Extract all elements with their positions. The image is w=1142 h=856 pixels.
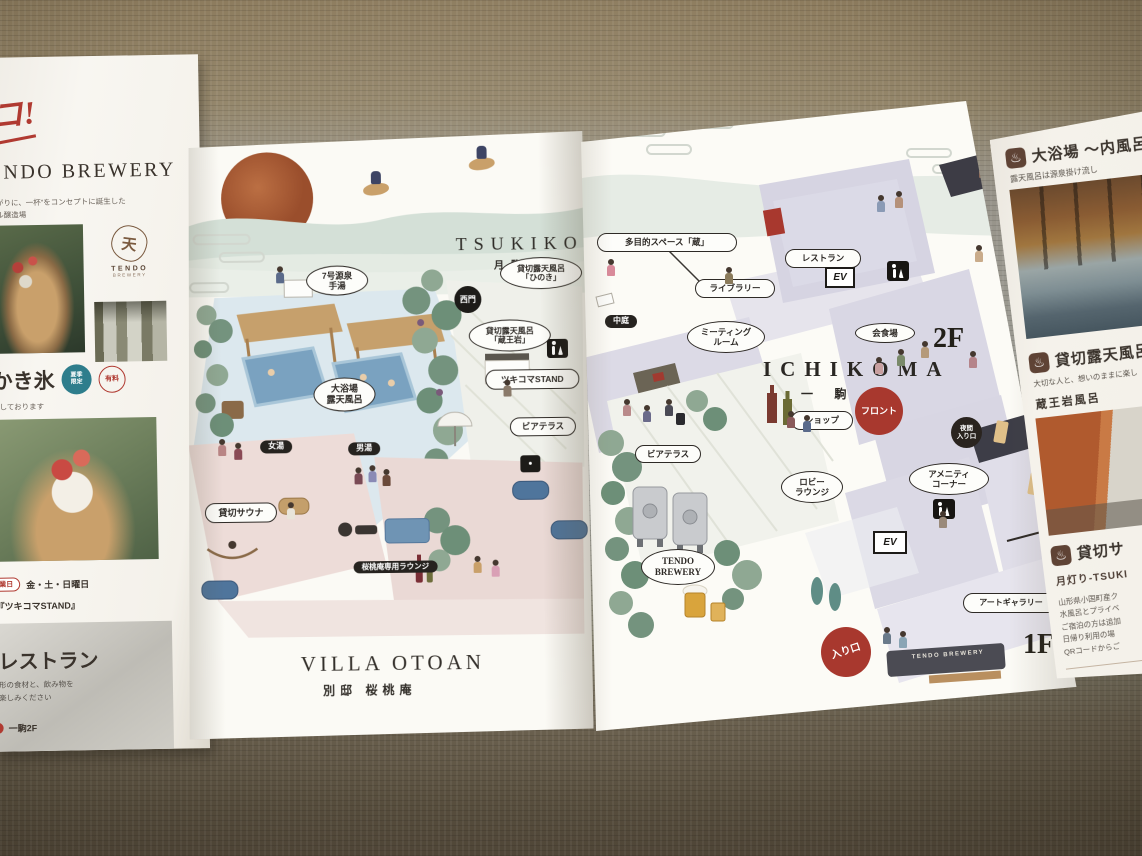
kakigori-section-header: かき氷 夏季 限定 有料 — [0, 364, 126, 396]
person-illustration — [643, 405, 651, 422]
map-label-banquet: 会食場 — [855, 323, 915, 343]
map-label-restaurant: レストラン — [785, 249, 861, 268]
person-illustration — [276, 266, 284, 283]
tendo-brewery-logo: 天 TENDO BREWERY — [93, 225, 166, 296]
person-illustration — [969, 351, 977, 368]
person-illustration — [287, 502, 295, 519]
restaurant-location: 一駒2F — [0, 721, 37, 735]
onsen-icon: ♨ — [1028, 351, 1050, 373]
sauna-description: 山形県小国町産ク 水風呂とプライベ ご宿泊の方は追加 日帰り利用の場 QRコード… — [1058, 590, 1125, 658]
restroom-icon — [547, 339, 568, 358]
map-label-tsukikoma-stand: ツキコマSTAND — [485, 369, 579, 390]
person-illustration — [473, 556, 481, 573]
elevator-label-1f: EV — [873, 531, 907, 554]
tsukikoma-map-page: TSUKIKOMA 月駒 7号源泉手湯 西門 貸切露天風呂「ひのき」 貸切露天風… — [182, 129, 593, 740]
person-illustration — [607, 259, 615, 276]
floor-1f-label: 1F — [1023, 629, 1054, 661]
sauna-name: 月灯り-TSUKI — [1055, 565, 1129, 588]
person-illustration — [354, 467, 362, 484]
brewery-section-description: あがりに、一杯”をコンセプトに誕生した ール醸造場 — [0, 195, 126, 221]
kakigori-photo — [0, 417, 159, 562]
map-label-beer-terrace: ビアテラス — [635, 445, 701, 463]
person-illustration — [787, 411, 795, 428]
person-illustration — [503, 379, 511, 396]
person-illustration — [725, 267, 733, 284]
person-illustration — [623, 399, 631, 416]
kakigori-title: かき氷 — [0, 365, 55, 396]
paid-badge: 有料 — [98, 365, 125, 392]
person-illustration — [218, 439, 226, 456]
rider-illustration — [468, 146, 496, 170]
person-illustration — [368, 465, 376, 482]
person-illustration — [899, 631, 907, 648]
person-illustration — [875, 357, 883, 374]
zao-rock-bath-label: 蔵王岩風呂 — [1035, 389, 1101, 412]
map-label-men-bath: 男湯 — [348, 442, 380, 455]
brochure-photo-scene: コ! TENDO BREWERY あがりに、一杯”をコンセプトに誕生した ール醸… — [0, 0, 1142, 856]
person-illustration — [883, 627, 891, 644]
person-illustration — [939, 511, 947, 528]
seasonal-badge: 夏季 限定 — [61, 364, 92, 395]
map-label-beer-terrace: ビアテラス — [510, 417, 576, 437]
cloud-doodles — [607, 119, 967, 173]
map-label-courtyard: 中庭 — [605, 315, 637, 328]
map-label-night-entrance: 夜間入り口 — [951, 417, 982, 448]
person-illustration — [382, 469, 390, 486]
person-illustration — [234, 443, 242, 460]
brewery-section-title: TENDO BREWERY — [0, 159, 176, 186]
schedule-row: 営業日 金・土・日曜日 — [0, 576, 89, 592]
rider-illustration — [363, 171, 391, 195]
elevator-label-2f: EV — [825, 267, 855, 288]
map-label-art-gallery: アートギャラリー — [963, 593, 1059, 613]
kakigori-note: 売しております — [0, 401, 44, 413]
schedule-badge: 営業日 — [0, 577, 20, 592]
ichikoma-title: ICHIKOMA — [763, 357, 951, 382]
restaurant-title: レストラン — [0, 644, 99, 675]
person-illustration — [877, 195, 885, 212]
restaurant-description: 形の食材と、飲み物を 楽しみください — [0, 678, 74, 705]
person-illustration — [492, 560, 500, 577]
plum-blossom-logo-icon: 天 — [109, 223, 149, 263]
map-label-amenity-corner: アメニティコーナー — [909, 463, 989, 495]
person-illustration — [665, 399, 673, 416]
person-illustration — [975, 245, 983, 262]
villa-otoan-title: VILLA OTOAN — [301, 650, 485, 677]
map-label-front-desk: フロント — [855, 387, 903, 435]
private-sauna-title: 貸切サ — [1076, 537, 1126, 563]
person-illustration — [803, 415, 811, 432]
onsen-icon: ♨ — [1050, 544, 1072, 566]
tsukikoma-title: TSUKIKOMA — [456, 232, 594, 255]
map-label-multi-space: 多目的スペース「蔵」 — [597, 233, 737, 252]
private-sauna-section-header: ♨ 貸切サ — [1050, 537, 1126, 566]
handwritten-accent-text: コ! — [0, 87, 38, 138]
restaurant-section: レストラン 形の食材と、飲み物を 楽しみください 一駒2F — [0, 621, 174, 752]
brochure-left-panel: コ! TENDO BREWERY あがりに、一杯”をコンセプトに誕生した ール醸… — [0, 54, 210, 752]
map-label-shop: ショップ — [791, 411, 853, 430]
private-bath-title: 貸切露天風呂 — [1054, 339, 1142, 371]
rock-bath-photo — [1035, 399, 1142, 536]
stand-name-line: 『ツキコマSTAND』 — [0, 598, 80, 612]
bath-section-header: ♨ 大浴場 〜内風呂・露 — [1005, 128, 1142, 169]
person-illustration — [921, 341, 929, 358]
open-air-bath-photo — [1009, 170, 1142, 339]
map-label-tendo-brewery: TENDOBREWERY — [641, 549, 715, 585]
ichikoma-title-ja: 一 駒 — [801, 385, 855, 402]
beer-barrel-photo — [0, 224, 85, 354]
floor-2f-label: 2F — [933, 323, 964, 355]
villa-otoan-title-ja: 別邸 桜桃庵 — [323, 681, 417, 699]
map-label-entrance: 入り口 — [821, 627, 871, 677]
location-marker-icon — [0, 723, 4, 734]
map-label-villa-lounge: 桜桃庵専用ラウンジ — [354, 560, 438, 573]
schedule-days: 金・土・日曜日 — [26, 577, 89, 591]
person-illustration — [895, 191, 903, 208]
restroom-icon — [887, 261, 909, 281]
person-illustration — [897, 349, 905, 366]
map-label-library: ライブラリー — [695, 279, 775, 298]
map-label-meeting-room: ミーティングルーム — [687, 321, 765, 353]
brand-chip-icon: ● — [520, 455, 540, 472]
map-label-women-bath: 女湯 — [260, 440, 292, 453]
map-label-lobby-lounge: ロビーラウンジ — [781, 471, 843, 503]
brewery-tanks-photo — [94, 301, 167, 362]
person-illustration — [979, 161, 987, 178]
map-label-private-sauna: 貸切サウナ — [205, 502, 277, 523]
bath-section-title: 大浴場 〜内風呂・露 — [1030, 128, 1142, 166]
onsen-icon: ♨ — [1005, 146, 1027, 168]
